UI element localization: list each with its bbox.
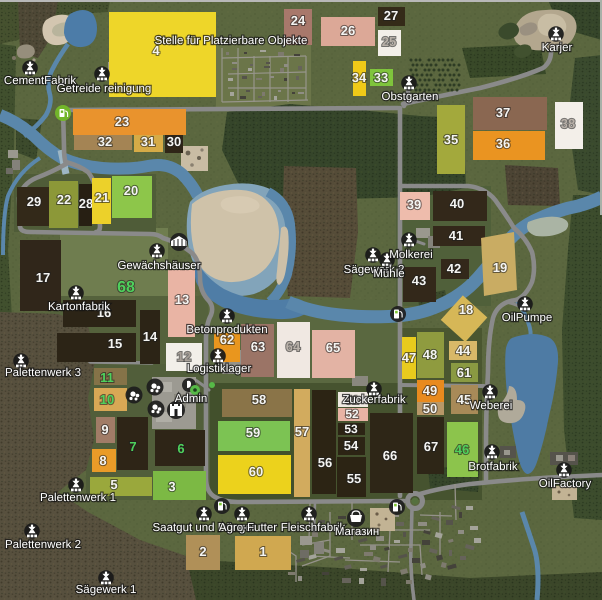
svg-text:12: 12 <box>177 349 191 364</box>
svg-text:Admin: Admin <box>175 393 208 405</box>
svg-text:7: 7 <box>129 439 136 454</box>
svg-text:32: 32 <box>98 134 112 149</box>
svg-text:25: 25 <box>382 34 396 49</box>
svg-text:Магазин: Магазин <box>335 526 379 538</box>
svg-text:Mühle: Mühle <box>373 268 404 280</box>
svg-text:Weberei: Weberei <box>470 400 513 412</box>
svg-text:2: 2 <box>199 544 206 559</box>
svg-text:Gewächshäuser: Gewächshäuser <box>117 260 200 272</box>
svg-text:Obstgarten: Obstgarten <box>382 91 439 103</box>
svg-text:67: 67 <box>424 439 438 454</box>
svg-text:19: 19 <box>493 260 507 275</box>
svg-text:Brotfabrik: Brotfabrik <box>468 461 517 473</box>
svg-text:10: 10 <box>100 392 114 407</box>
svg-text:34: 34 <box>352 70 367 85</box>
svg-text:40: 40 <box>450 196 464 211</box>
svg-text:41: 41 <box>449 228 463 243</box>
svg-text:29: 29 <box>27 194 41 209</box>
svg-text:14: 14 <box>143 329 158 344</box>
svg-text:23: 23 <box>115 114 129 129</box>
svg-text:Sägewerk 1: Sägewerk 1 <box>76 584 137 596</box>
svg-text:44: 44 <box>456 343 471 358</box>
svg-text:38: 38 <box>561 116 575 131</box>
svg-text:Stelle für Platzierbare Objekt: Stelle für Platzierbare Objekte <box>155 35 308 47</box>
svg-text:43: 43 <box>412 273 426 288</box>
svg-text:22: 22 <box>57 192 71 207</box>
svg-text:Karjer: Karjer <box>542 42 573 54</box>
svg-text:Kartonfabrik: Kartonfabrik <box>48 301 110 313</box>
svg-text:24: 24 <box>291 13 306 28</box>
svg-text:59: 59 <box>246 425 260 440</box>
svg-text:52: 52 <box>345 407 359 421</box>
svg-text:63: 63 <box>251 339 265 354</box>
svg-text:33: 33 <box>374 70 388 85</box>
svg-text:Betonprodukten: Betonprodukten <box>186 324 267 336</box>
svg-text:Palettenwerk 1: Palettenwerk 1 <box>40 492 116 504</box>
svg-text:13: 13 <box>175 292 189 307</box>
svg-text:18: 18 <box>459 302 473 317</box>
svg-text:61: 61 <box>457 365 471 380</box>
svg-text:39: 39 <box>407 197 421 212</box>
svg-text:Getreide reinigung: Getreide reinigung <box>57 83 152 95</box>
svg-text:Zuckerfabrik: Zuckerfabrik <box>342 394 406 406</box>
svg-text:8: 8 <box>99 453 106 468</box>
svg-text:49: 49 <box>423 383 437 398</box>
svg-text:56: 56 <box>318 455 332 470</box>
svg-text:55: 55 <box>347 471 361 486</box>
svg-text:Palettenwerk 3: Palettenwerk 3 <box>5 367 81 379</box>
svg-text:31: 31 <box>141 134 155 149</box>
svg-text:5: 5 <box>110 477 117 492</box>
svg-text:17: 17 <box>36 270 50 285</box>
svg-text:Palettenwerk 2: Palettenwerk 2 <box>5 539 81 551</box>
svg-text:9: 9 <box>101 422 108 437</box>
svg-text:Logistiklager: Logistiklager <box>187 363 252 375</box>
svg-text:Molkerei: Molkerei <box>389 249 432 261</box>
svg-text:26: 26 <box>341 23 355 38</box>
svg-text:50: 50 <box>423 401 437 416</box>
svg-text:30: 30 <box>167 134 181 149</box>
svg-text:58: 58 <box>252 392 266 407</box>
svg-text:28: 28 <box>79 196 93 211</box>
svg-text:35: 35 <box>444 132 458 147</box>
svg-text:36: 36 <box>496 136 510 151</box>
svg-text:11: 11 <box>100 370 114 385</box>
svg-text:53: 53 <box>344 422 358 436</box>
svg-text:21: 21 <box>95 190 109 205</box>
svg-text:66: 66 <box>383 448 397 463</box>
svg-text:42: 42 <box>447 261 461 276</box>
svg-text:OilFactory: OilFactory <box>539 478 592 490</box>
svg-text:68: 68 <box>117 279 135 296</box>
svg-text:54: 54 <box>344 438 359 453</box>
svg-text:20: 20 <box>124 183 138 198</box>
svg-text:64: 64 <box>286 339 301 354</box>
svg-text:6: 6 <box>177 441 184 456</box>
svg-text:15: 15 <box>108 336 122 351</box>
svg-text:3: 3 <box>168 479 175 494</box>
svg-text:27: 27 <box>384 8 398 23</box>
svg-text:37: 37 <box>496 105 510 120</box>
svg-text:1: 1 <box>259 544 266 559</box>
svg-text:OilPumpe: OilPumpe <box>502 312 553 324</box>
svg-text:46: 46 <box>455 442 469 457</box>
svg-text:Agro-Futter: Agro-Futter <box>219 522 277 534</box>
svg-text:60: 60 <box>249 464 263 479</box>
svg-text:47: 47 <box>402 350 416 365</box>
svg-text:48: 48 <box>423 347 437 362</box>
svg-text:57: 57 <box>295 424 309 439</box>
svg-text:65: 65 <box>326 340 340 355</box>
